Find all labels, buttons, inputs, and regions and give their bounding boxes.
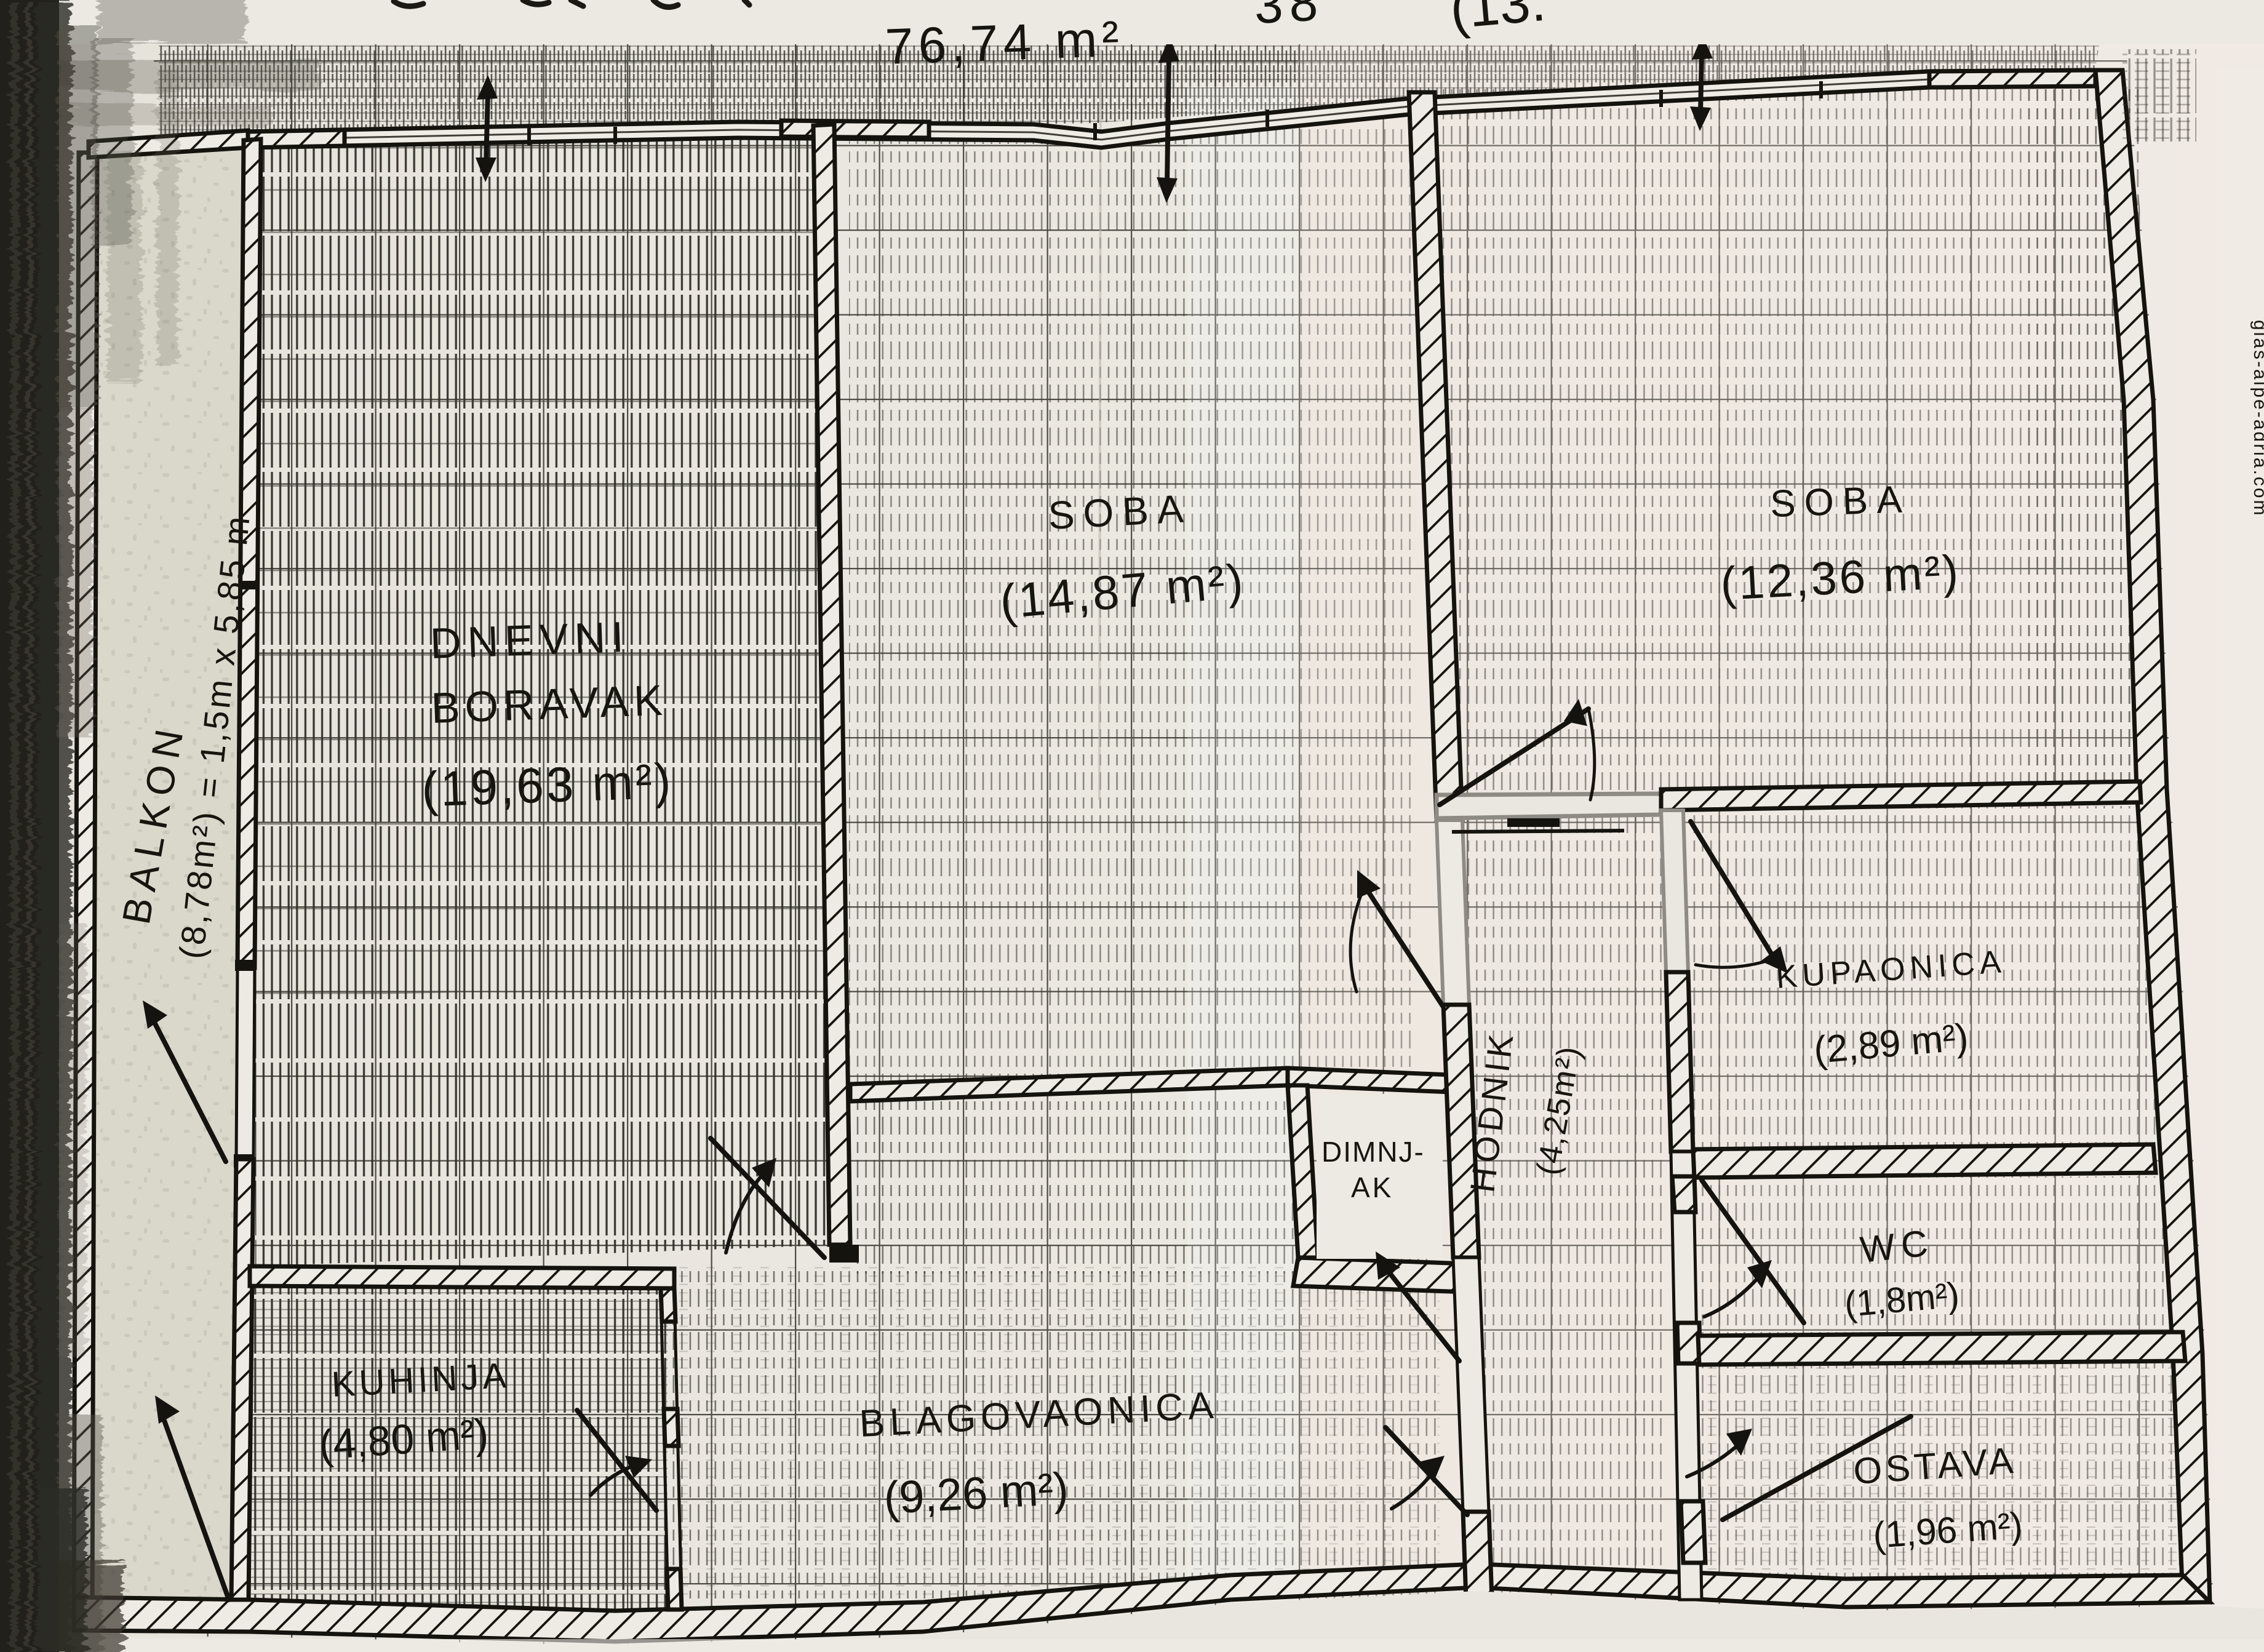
svg-text:SOBA: SOBA <box>1047 486 1193 538</box>
svg-text:DNEVNI: DNEVNI <box>429 613 631 668</box>
svg-text:76,74 m²: 76,74 m² <box>884 11 1125 75</box>
svg-text:DIMNJ-: DIMNJ- <box>1321 1136 1425 1168</box>
svg-text:WC: WC <box>1858 1222 1935 1271</box>
svg-text:glas-alpe-adria.com: glas-alpe-adria.com <box>2250 320 2264 517</box>
svg-text:38: 38 <box>1253 0 1325 34</box>
svg-text:AK: AK <box>1351 1171 1393 1203</box>
svg-text:BORAVAK: BORAVAK <box>430 676 668 732</box>
svg-text:(9,26 m²): (9,26 m²) <box>882 1462 1069 1523</box>
svg-text:SOBA: SOBA <box>1769 478 1911 525</box>
svg-text:(19,63 m²): (19,63 m²) <box>421 753 674 816</box>
